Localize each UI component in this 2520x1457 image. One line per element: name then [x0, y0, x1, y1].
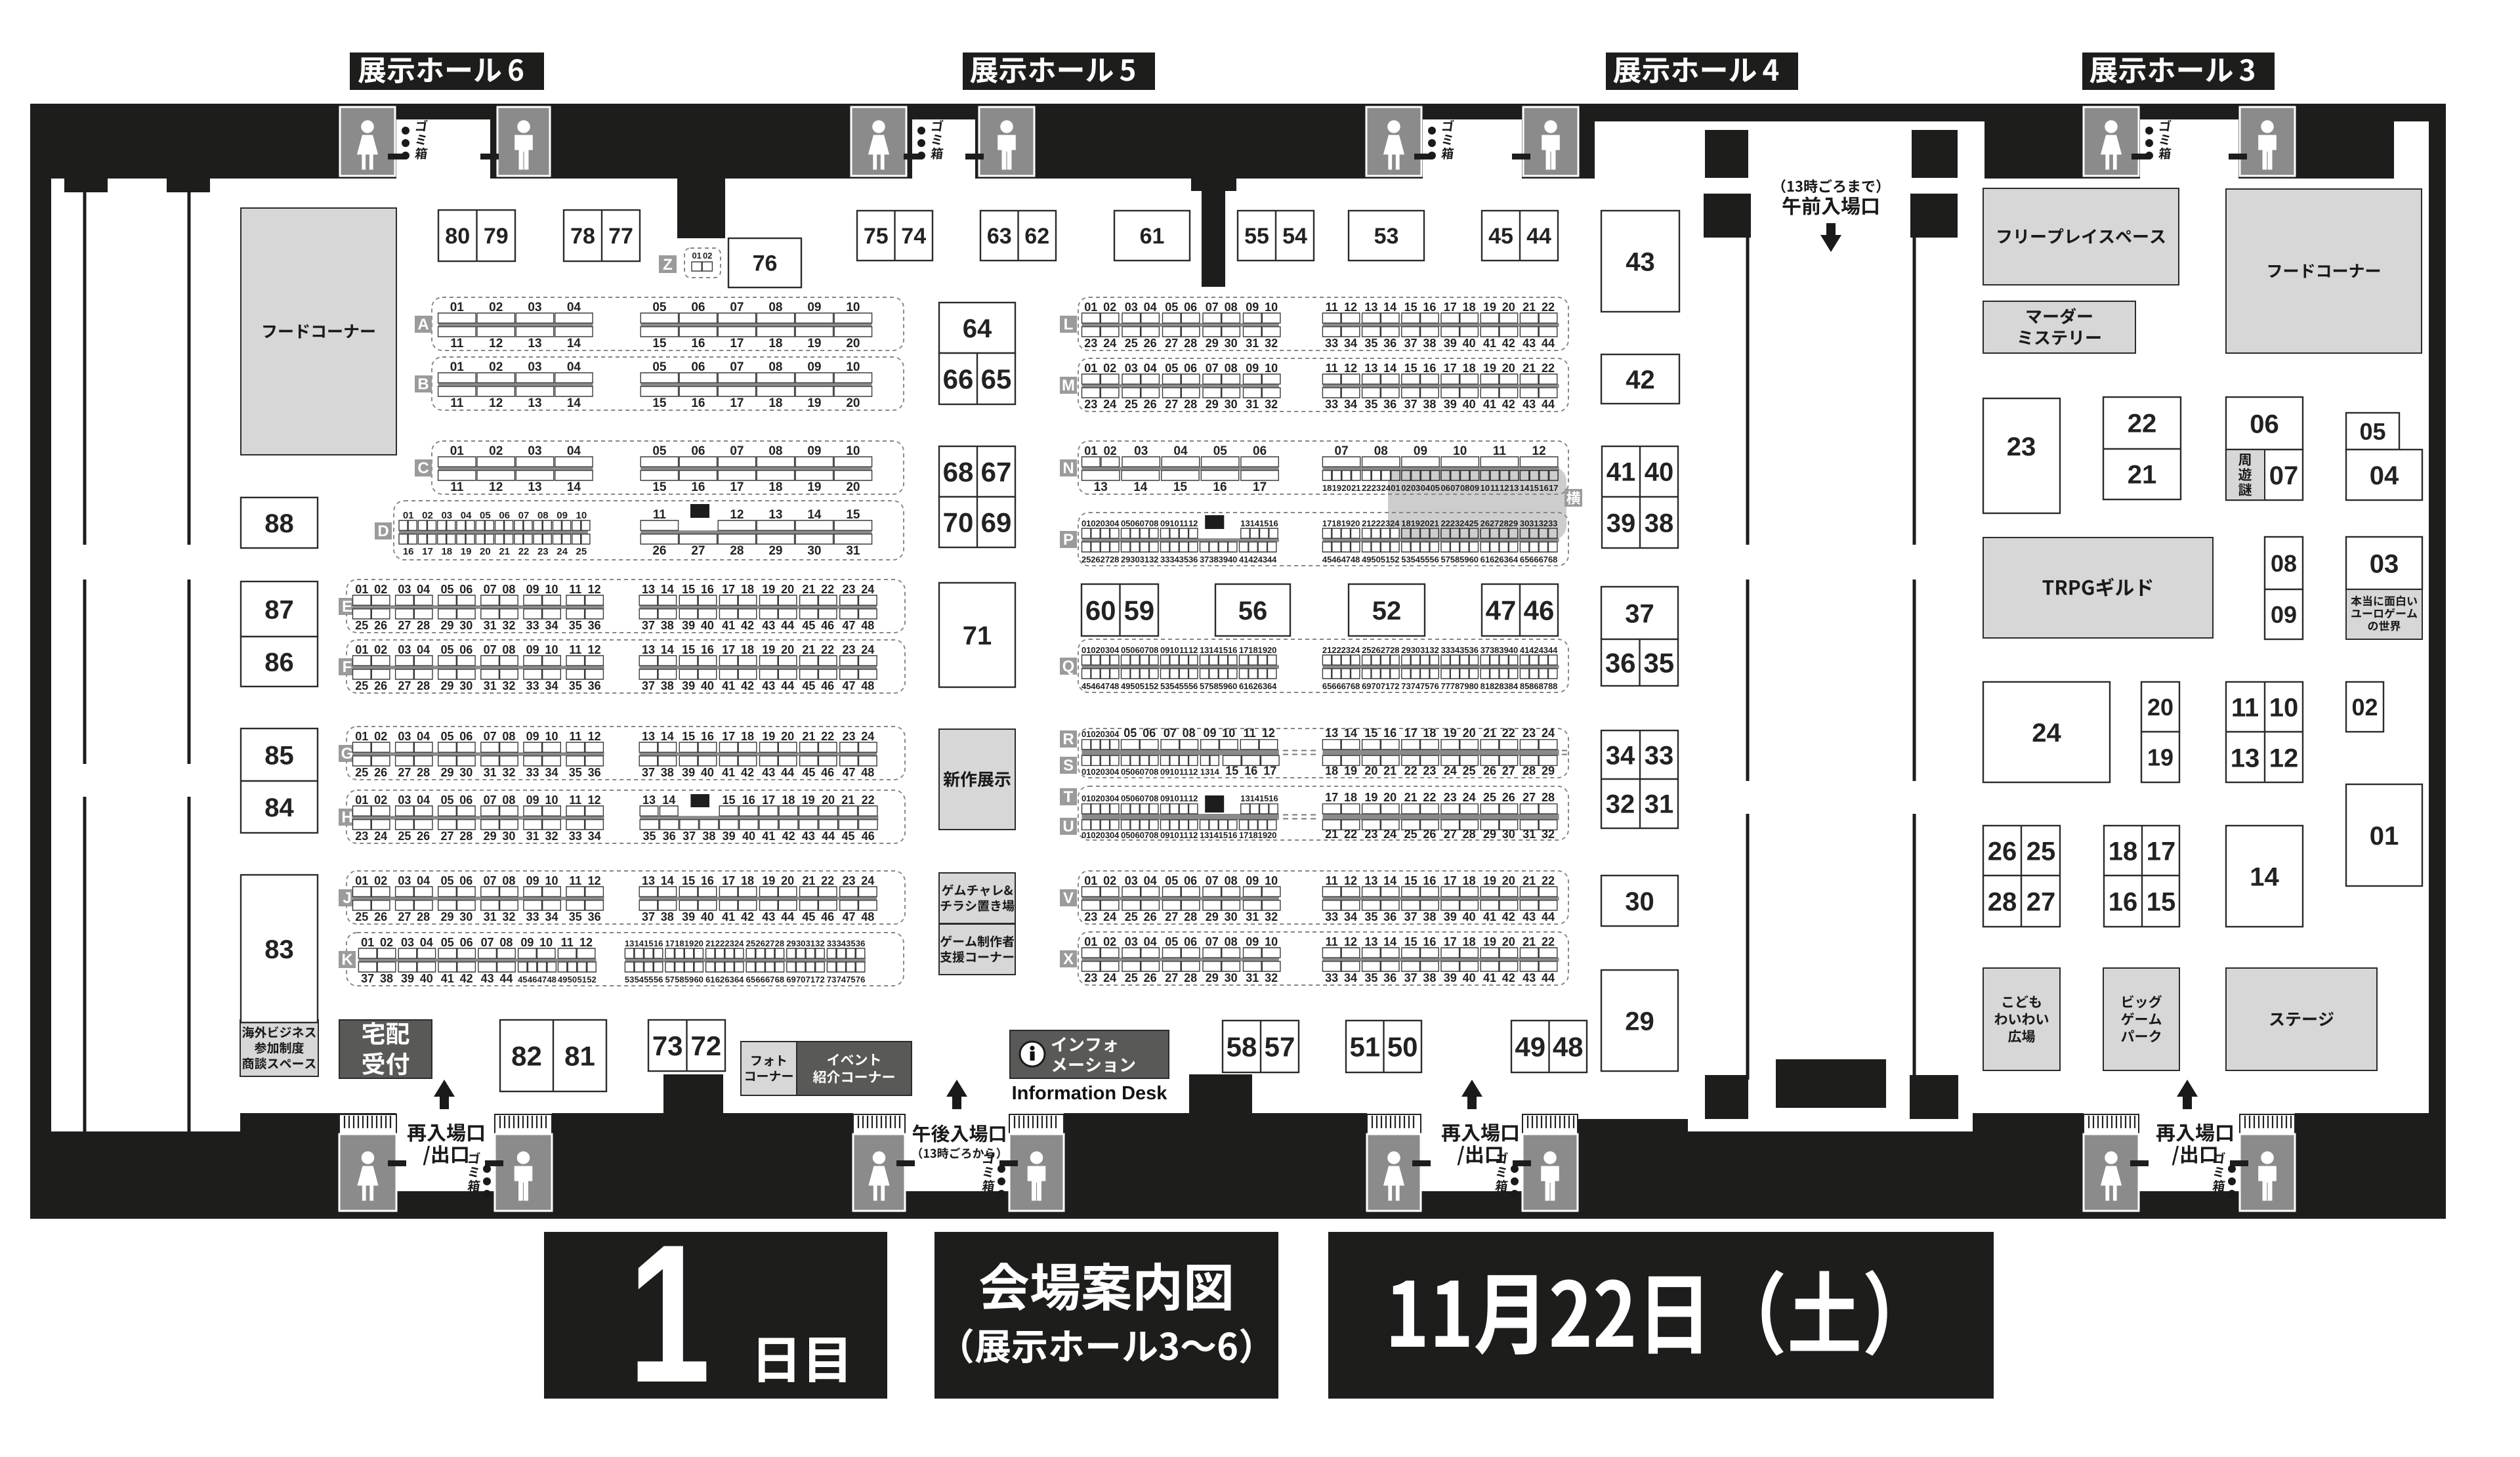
svg-text:09: 09	[526, 730, 539, 743]
svg-text:86: 86	[264, 648, 294, 677]
svg-text:24: 24	[556, 546, 568, 557]
svg-text:16: 16	[1269, 518, 1278, 528]
svg-text:72: 72	[690, 1030, 721, 1061]
svg-text:75: 75	[846, 975, 855, 984]
svg-text:57: 57	[665, 975, 674, 984]
svg-text:22: 22	[1542, 362, 1555, 375]
svg-text:54: 54	[1411, 555, 1421, 564]
svg-text:02: 02	[1103, 301, 1116, 314]
svg-text:29: 29	[786, 939, 795, 948]
svg-text:43: 43	[762, 679, 775, 692]
svg-text:33: 33	[1325, 398, 1338, 411]
svg-text:62: 62	[1024, 224, 1049, 249]
svg-text:76: 76	[753, 251, 778, 276]
svg-text:42: 42	[1502, 337, 1515, 350]
svg-text:38: 38	[380, 972, 393, 985]
svg-text:24: 24	[1103, 398, 1116, 411]
svg-text:03: 03	[1101, 767, 1110, 777]
svg-text:37: 37	[642, 619, 655, 632]
svg-text:09: 09	[807, 360, 821, 374]
svg-text:45: 45	[841, 830, 854, 843]
svg-text:54: 54	[1282, 224, 1307, 249]
svg-text:40: 40	[701, 766, 714, 779]
svg-text:30: 30	[459, 766, 472, 779]
svg-text:20: 20	[1351, 518, 1360, 528]
svg-text:28: 28	[1522, 765, 1536, 778]
svg-text:14: 14	[567, 337, 581, 350]
svg-text:U: U	[1062, 818, 1074, 835]
svg-text:05: 05	[480, 510, 491, 521]
svg-text:60: 60	[1228, 681, 1237, 691]
svg-text:10: 10	[1169, 767, 1179, 777]
svg-text:32: 32	[1606, 790, 1635, 818]
svg-text:S: S	[1063, 757, 1074, 774]
svg-text:05: 05	[1165, 874, 1178, 887]
svg-text:12: 12	[730, 508, 744, 522]
svg-text:16: 16	[1228, 830, 1237, 840]
svg-text:34: 34	[1344, 971, 1357, 984]
svg-text:16: 16	[1244, 765, 1257, 778]
svg-text:24: 24	[1103, 910, 1116, 923]
svg-text:30: 30	[796, 939, 805, 948]
svg-text:05: 05	[1121, 793, 1130, 803]
svg-text:39: 39	[682, 619, 695, 632]
svg-text:27: 27	[2026, 887, 2056, 916]
svg-text:31: 31	[1420, 645, 1429, 655]
svg-text:43: 43	[1522, 971, 1536, 984]
svg-text:35: 35	[1364, 337, 1377, 350]
svg-text:32: 32	[1265, 398, 1278, 411]
svg-text:17: 17	[1444, 874, 1457, 887]
svg-text:31: 31	[484, 910, 497, 923]
svg-text:52: 52	[1149, 681, 1158, 691]
svg-text:V: V	[1063, 889, 1074, 907]
svg-text:25: 25	[398, 830, 411, 843]
svg-text:68: 68	[1548, 555, 1557, 564]
svg-text:20: 20	[1502, 362, 1515, 375]
svg-text:07: 07	[1206, 301, 1219, 314]
svg-text:H: H	[341, 809, 352, 826]
svg-text:27: 27	[398, 619, 411, 632]
svg-text:17: 17	[762, 793, 775, 807]
svg-text:35: 35	[569, 619, 582, 632]
svg-text:35: 35	[1643, 648, 1674, 679]
svg-text:07: 07	[518, 510, 530, 521]
svg-text:27: 27	[398, 679, 411, 692]
svg-text:88: 88	[264, 509, 294, 538]
svg-text:23: 23	[1084, 971, 1097, 984]
svg-text:03: 03	[528, 444, 541, 458]
svg-text:42: 42	[1502, 398, 1515, 411]
svg-text:03: 03	[398, 643, 411, 656]
svg-text:08: 08	[1149, 518, 1158, 528]
svg-text:20: 20	[1267, 830, 1276, 840]
svg-text:09: 09	[1160, 518, 1169, 528]
svg-text:23: 23	[1423, 765, 1436, 778]
svg-text:39: 39	[1499, 645, 1508, 655]
svg-text:03: 03	[1101, 830, 1110, 840]
svg-text:55: 55	[1244, 224, 1269, 249]
svg-text:24: 24	[1463, 791, 1476, 804]
svg-text:12: 12	[1188, 767, 1198, 777]
svg-text:02: 02	[2351, 694, 2378, 721]
svg-text:24: 24	[1103, 971, 1116, 984]
svg-text:15: 15	[1219, 645, 1228, 655]
svg-text:39: 39	[682, 910, 695, 923]
svg-text:20: 20	[694, 939, 703, 948]
svg-text:15: 15	[682, 874, 695, 887]
svg-text:R: R	[1062, 730, 1074, 748]
svg-text:38: 38	[661, 910, 674, 923]
svg-text:69: 69	[981, 507, 1012, 538]
svg-text:08: 08	[502, 730, 515, 743]
svg-text:57: 57	[1265, 1032, 1295, 1063]
svg-text:09: 09	[526, 643, 539, 656]
svg-text:08: 08	[499, 936, 513, 949]
svg-text:39: 39	[682, 679, 695, 692]
svg-text:22: 22	[1542, 301, 1555, 314]
svg-text:01: 01	[403, 510, 414, 521]
svg-text:22: 22	[1344, 828, 1357, 841]
svg-text:37: 37	[642, 679, 655, 692]
svg-text:13: 13	[1240, 518, 1249, 528]
svg-text:11: 11	[1179, 767, 1188, 777]
svg-text:68: 68	[943, 457, 974, 488]
svg-text:21: 21	[2128, 460, 2157, 489]
svg-text:38: 38	[702, 830, 715, 843]
svg-text:11: 11	[1179, 645, 1188, 655]
svg-text:40: 40	[420, 972, 433, 985]
svg-text:35: 35	[1459, 645, 1469, 655]
svg-text:43: 43	[1258, 555, 1267, 564]
svg-text:31: 31	[1246, 910, 1259, 923]
svg-text:08: 08	[1149, 793, 1158, 803]
svg-text:44: 44	[781, 766, 794, 779]
svg-text:32: 32	[1539, 518, 1548, 528]
svg-text:33: 33	[1160, 555, 1169, 564]
svg-text:42: 42	[741, 619, 754, 632]
svg-text:24: 24	[861, 583, 874, 596]
svg-text:52: 52	[1390, 555, 1399, 564]
svg-text:10: 10	[1265, 362, 1278, 375]
svg-text:23: 23	[842, 730, 855, 743]
svg-text:51: 51	[1381, 555, 1390, 564]
svg-text:10: 10	[576, 510, 587, 521]
svg-text:06: 06	[691, 301, 705, 314]
svg-text:05: 05	[440, 643, 453, 656]
svg-text:17: 17	[722, 730, 735, 743]
svg-text:15: 15	[1219, 830, 1228, 840]
svg-text:03: 03	[1101, 518, 1110, 528]
svg-text:26: 26	[1483, 765, 1496, 778]
svg-text:13: 13	[528, 337, 541, 350]
svg-text:58: 58	[1450, 555, 1459, 564]
svg-text:25: 25	[1463, 765, 1476, 778]
svg-text:81: 81	[1480, 681, 1490, 691]
svg-text:11: 11	[569, 874, 581, 887]
svg-text:20: 20	[1383, 791, 1396, 804]
svg-text:19: 19	[461, 546, 472, 557]
svg-text:11: 11	[569, 730, 581, 743]
svg-text:36: 36	[663, 830, 676, 843]
svg-text:62: 62	[1248, 681, 1257, 691]
svg-text:59: 59	[1123, 595, 1154, 626]
svg-text:22: 22	[821, 730, 834, 743]
svg-text:07: 07	[1450, 483, 1459, 493]
svg-text:17: 17	[1444, 301, 1457, 314]
svg-text:77: 77	[608, 224, 633, 249]
svg-text:81: 81	[564, 1041, 595, 1072]
svg-text:13: 13	[1200, 645, 1209, 655]
svg-text:03: 03	[1125, 935, 1138, 948]
svg-text:13: 13	[528, 480, 541, 494]
svg-text:01: 01	[1081, 518, 1091, 528]
svg-text:27: 27	[1101, 555, 1110, 564]
svg-text:07: 07	[484, 874, 497, 887]
svg-text:01: 01	[1081, 729, 1091, 739]
svg-text:71: 71	[1381, 681, 1390, 691]
svg-text:01: 01	[1081, 793, 1091, 803]
svg-text:40: 40	[1509, 645, 1518, 655]
svg-text:05: 05	[1121, 645, 1130, 655]
svg-text:14: 14	[567, 396, 581, 410]
svg-text:47: 47	[842, 766, 855, 779]
svg-text:27: 27	[1165, 398, 1178, 411]
svg-text:36: 36	[1383, 910, 1396, 923]
svg-text:28: 28	[459, 830, 472, 843]
svg-text:02: 02	[1091, 830, 1100, 840]
svg-text:32: 32	[502, 619, 515, 632]
svg-text:13: 13	[1200, 830, 1209, 840]
svg-text:20: 20	[480, 546, 491, 557]
svg-text:15: 15	[2147, 887, 2176, 916]
svg-text:70: 70	[943, 507, 974, 538]
svg-text:22: 22	[862, 793, 875, 807]
svg-text:08: 08	[502, 874, 515, 887]
svg-text:16: 16	[1423, 935, 1436, 948]
svg-text:41: 41	[1239, 555, 1248, 564]
svg-text:36: 36	[1469, 645, 1479, 655]
svg-text:06: 06	[1130, 518, 1139, 528]
svg-text:18: 18	[741, 730, 754, 743]
svg-text:21: 21	[1522, 301, 1536, 314]
svg-text:29: 29	[1401, 645, 1410, 655]
svg-text:07: 07	[484, 583, 497, 596]
svg-text:44: 44	[499, 972, 513, 985]
svg-text:14: 14	[661, 643, 674, 656]
svg-text:64: 64	[734, 975, 744, 984]
svg-text:17: 17	[730, 480, 744, 494]
svg-text:17: 17	[1239, 645, 1248, 655]
svg-text:21: 21	[1522, 935, 1536, 948]
svg-text:03: 03	[1101, 793, 1110, 803]
svg-text:38: 38	[1645, 509, 1674, 538]
svg-text:04: 04	[1110, 518, 1120, 528]
svg-text:21: 21	[1429, 518, 1438, 528]
svg-text:55: 55	[1179, 681, 1188, 691]
svg-text:09: 09	[526, 874, 539, 887]
svg-text:03: 03	[2370, 549, 2399, 578]
svg-text:72: 72	[815, 975, 824, 984]
svg-text:34: 34	[1169, 555, 1179, 564]
svg-text:15: 15	[1404, 935, 1417, 948]
svg-text:09: 09	[1160, 830, 1169, 840]
svg-text:34: 34	[545, 910, 558, 923]
svg-text:09: 09	[526, 583, 539, 596]
svg-text:42: 42	[741, 910, 754, 923]
svg-text:22: 22	[1362, 483, 1371, 493]
svg-text:08: 08	[768, 301, 782, 314]
svg-text:04: 04	[420, 936, 433, 949]
svg-text:17: 17	[1444, 935, 1457, 948]
svg-text:13: 13	[1509, 483, 1519, 493]
svg-text:18: 18	[1423, 727, 1436, 740]
svg-text:01: 01	[1081, 830, 1091, 840]
svg-text:07: 07	[1206, 362, 1219, 375]
svg-text:03: 03	[398, 583, 411, 596]
svg-text:44: 44	[1542, 910, 1555, 923]
svg-text:45: 45	[518, 975, 527, 984]
svg-text:31: 31	[1522, 828, 1536, 841]
svg-text:06: 06	[499, 510, 510, 521]
svg-text:26: 26	[374, 910, 387, 923]
svg-text:15: 15	[1364, 727, 1377, 740]
svg-text:16: 16	[691, 396, 705, 410]
svg-text:33: 33	[526, 766, 539, 779]
svg-text:05: 05	[440, 583, 453, 596]
svg-text:13: 13	[642, 730, 655, 743]
svg-text:34: 34	[588, 830, 601, 843]
svg-text:15: 15	[722, 793, 735, 807]
svg-text:74: 74	[837, 975, 847, 984]
svg-text:13: 13	[642, 874, 655, 887]
svg-text:01: 01	[1084, 444, 1097, 457]
svg-text:67: 67	[1539, 555, 1548, 564]
svg-text:F: F	[343, 658, 352, 676]
svg-text:18: 18	[1463, 362, 1476, 375]
svg-text:25: 25	[2026, 837, 2056, 866]
svg-text:57: 57	[1200, 681, 1209, 691]
svg-text:01: 01	[1084, 301, 1097, 314]
svg-text:08: 08	[502, 793, 515, 807]
svg-text:12: 12	[1188, 793, 1198, 803]
svg-text:35: 35	[642, 830, 656, 843]
svg-text:36: 36	[1188, 555, 1198, 564]
svg-text:46: 46	[821, 766, 834, 779]
svg-text:12: 12	[1500, 483, 1509, 493]
svg-text:02: 02	[703, 251, 712, 261]
svg-text:28: 28	[1184, 971, 1197, 984]
svg-text:27: 27	[1165, 910, 1178, 923]
svg-text:1: 1	[628, 1204, 710, 1424]
svg-text:69: 69	[786, 975, 795, 984]
svg-text:25: 25	[1362, 645, 1371, 655]
svg-text:49: 49	[1362, 555, 1371, 564]
svg-text:58: 58	[675, 975, 684, 984]
svg-text:14: 14	[1383, 874, 1396, 887]
svg-text:21: 21	[1522, 362, 1536, 375]
svg-text:71: 71	[963, 622, 992, 650]
svg-text:28: 28	[730, 544, 744, 558]
svg-text:03: 03	[528, 301, 541, 314]
svg-text:14: 14	[1344, 727, 1357, 740]
svg-text:87: 87	[1539, 681, 1548, 691]
svg-text:48: 48	[861, 619, 874, 632]
svg-text:05: 05	[1165, 301, 1178, 314]
svg-text:17: 17	[1444, 362, 1457, 375]
svg-text:35: 35	[1364, 971, 1377, 984]
svg-text:02: 02	[1091, 729, 1100, 739]
svg-text:53: 53	[1160, 681, 1169, 691]
svg-text:09: 09	[807, 444, 821, 458]
svg-text:25: 25	[355, 619, 368, 632]
svg-text:20: 20	[846, 337, 860, 350]
svg-text:37: 37	[1200, 555, 1209, 564]
svg-text:28: 28	[1184, 910, 1197, 923]
svg-text:15: 15	[682, 583, 695, 596]
svg-text:29: 29	[1206, 971, 1219, 984]
svg-text:10: 10	[1169, 830, 1179, 840]
svg-text:41: 41	[1483, 337, 1496, 350]
svg-text:63: 63	[1258, 681, 1267, 691]
svg-text:04: 04	[567, 444, 581, 458]
svg-text:82: 82	[511, 1041, 542, 1072]
svg-text:12: 12	[1344, 874, 1357, 887]
svg-text:08: 08	[1149, 645, 1158, 655]
svg-text:25: 25	[355, 910, 368, 923]
svg-text:24: 24	[1459, 518, 1469, 528]
svg-text:30: 30	[459, 679, 472, 692]
svg-text:19: 19	[1483, 874, 1496, 887]
svg-text:33: 33	[1645, 741, 1674, 770]
svg-text:26: 26	[652, 544, 666, 558]
svg-text:71: 71	[806, 975, 815, 984]
svg-text:46: 46	[821, 910, 834, 923]
svg-text:60: 60	[694, 975, 703, 984]
svg-text:30: 30	[1225, 971, 1238, 984]
svg-text:26: 26	[374, 679, 387, 692]
svg-text:26: 26	[1091, 555, 1100, 564]
svg-text:01: 01	[2370, 822, 2399, 851]
svg-text:11: 11	[569, 793, 581, 807]
svg-text:15: 15	[644, 939, 653, 948]
svg-text:15: 15	[1259, 793, 1269, 803]
svg-text:17: 17	[1239, 830, 1248, 840]
svg-text:26: 26	[1502, 791, 1515, 804]
svg-text:03: 03	[1101, 645, 1110, 655]
svg-text:45: 45	[1081, 681, 1091, 691]
svg-text:27: 27	[1165, 971, 1178, 984]
svg-text:07: 07	[730, 360, 744, 374]
svg-text:01: 01	[692, 251, 701, 261]
svg-text:15: 15	[682, 643, 695, 656]
svg-text:10: 10	[545, 583, 558, 596]
svg-text:24: 24	[734, 939, 744, 948]
svg-text:J: J	[343, 889, 351, 907]
svg-text:79: 79	[1459, 681, 1469, 691]
svg-text:24: 24	[1103, 337, 1116, 350]
svg-text:06: 06	[1143, 727, 1156, 740]
svg-text:57: 57	[1440, 555, 1450, 564]
svg-text:21: 21	[499, 546, 510, 557]
svg-text:19: 19	[1344, 765, 1357, 778]
svg-text:28: 28	[1463, 828, 1476, 841]
svg-text:24: 24	[1383, 828, 1396, 841]
svg-text:49: 49	[1121, 681, 1130, 691]
svg-text:21: 21	[802, 874, 815, 887]
svg-text:50: 50	[568, 975, 577, 984]
svg-text:05: 05	[440, 793, 453, 807]
